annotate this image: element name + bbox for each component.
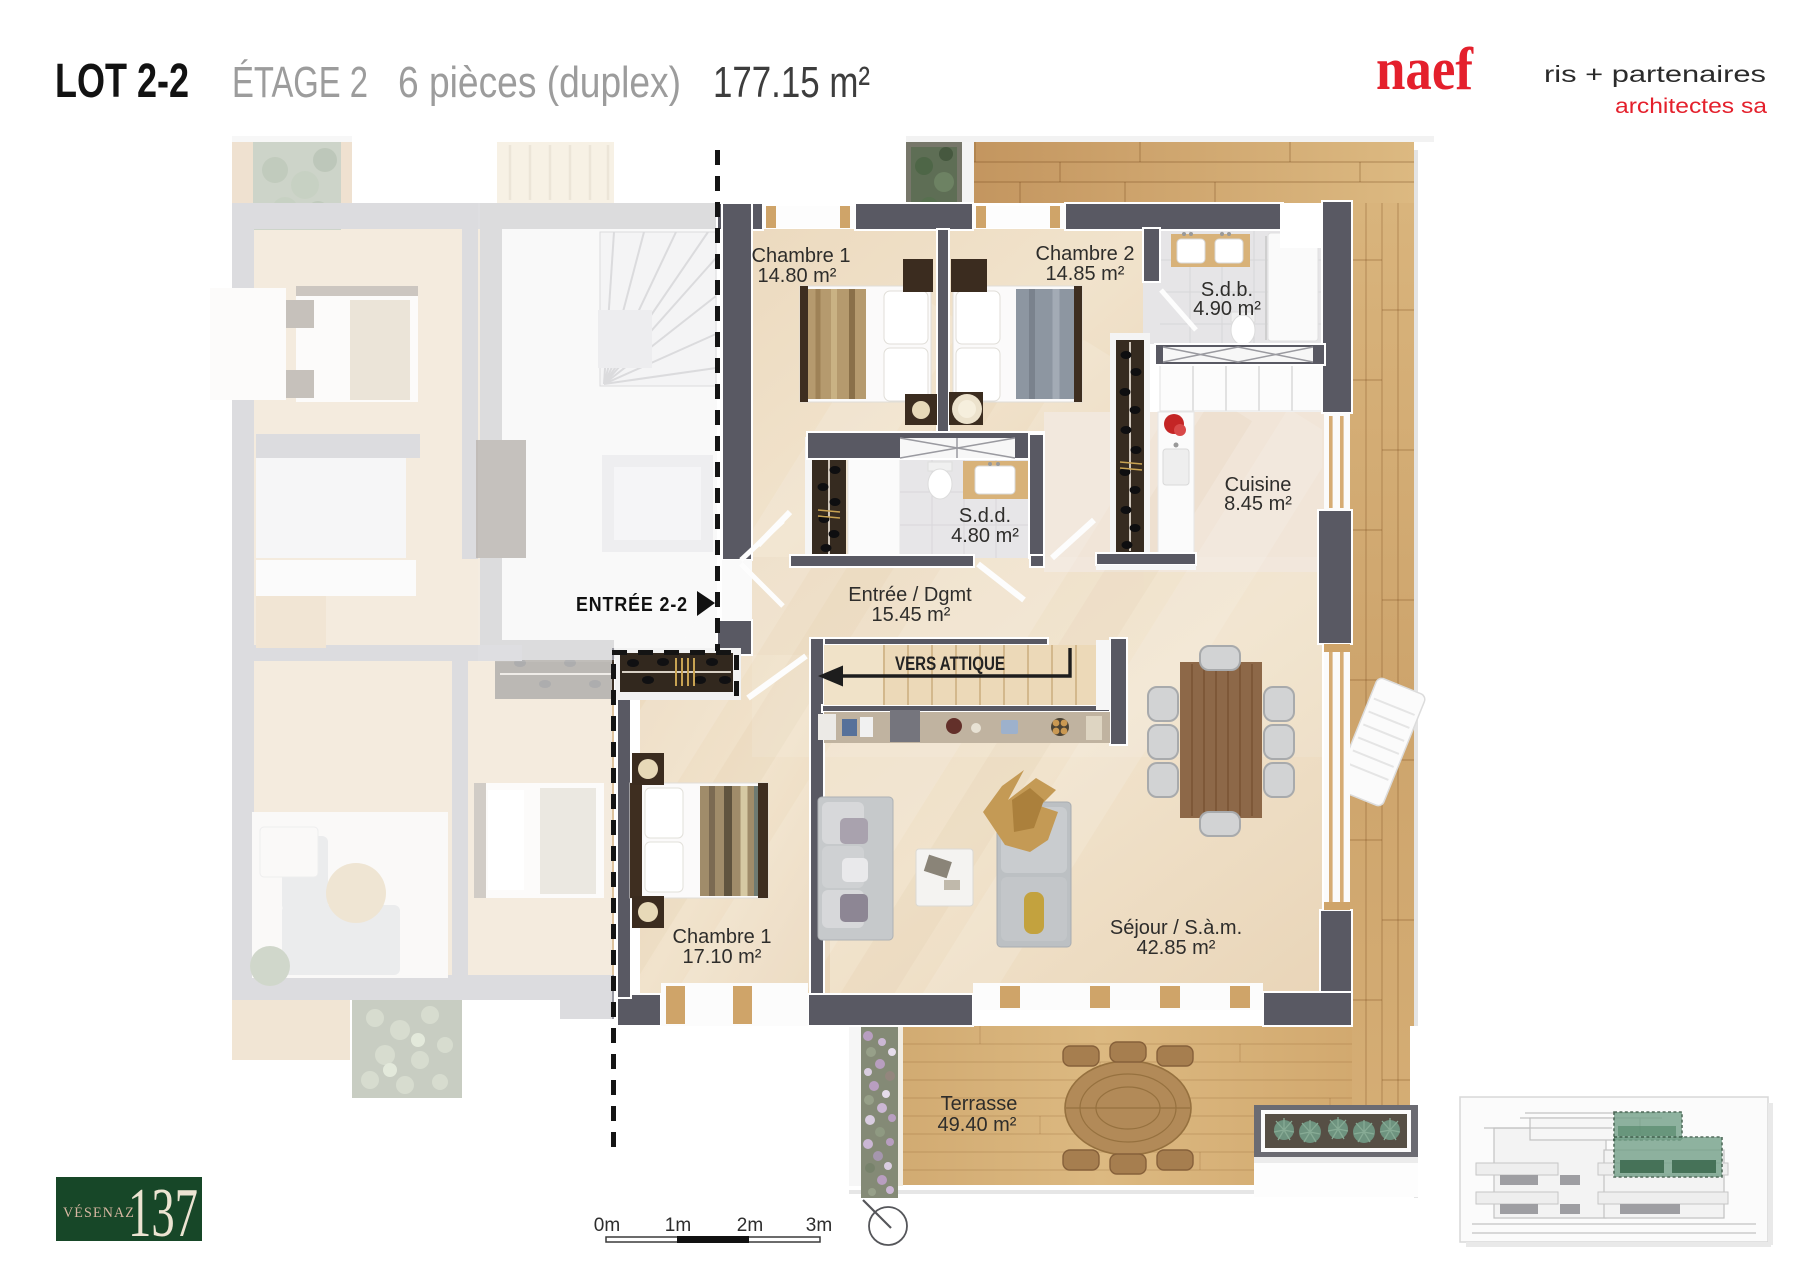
svg-text:VÉSENAZ: VÉSENAZ <box>63 1204 135 1221</box>
svg-text:VERS ATTIQUE: VERS ATTIQUE <box>895 654 1005 675</box>
svg-text:14.80 m²: 14.80 m² <box>758 265 837 287</box>
svg-text:4.80 m²: 4.80 m² <box>951 525 1019 547</box>
svg-text:Terrasse: Terrasse <box>941 1093 1018 1115</box>
svg-text:1m: 1m <box>665 1215 691 1236</box>
svg-text:LOT 2-2: LOT 2-2 <box>55 55 189 108</box>
svg-text:0m: 0m <box>594 1215 620 1236</box>
svg-text:ENTRÉE 2-2: ENTRÉE 2-2 <box>576 593 688 616</box>
svg-text:Séjour / S.à.m.: Séjour / S.à.m. <box>1110 917 1242 939</box>
svg-text:4.90 m²: 4.90 m² <box>1193 298 1261 320</box>
svg-text:3m: 3m <box>806 1215 832 1236</box>
svg-text:Chambre 1: Chambre 1 <box>752 245 851 267</box>
svg-text:14.85 m²: 14.85 m² <box>1046 263 1125 285</box>
svg-text:137: 137 <box>128 1175 198 1252</box>
svg-text:Chambre 2: Chambre 2 <box>1036 243 1135 265</box>
svg-text:42.85 m²: 42.85 m² <box>1137 937 1216 959</box>
svg-text:17.10 m²: 17.10 m² <box>683 946 762 968</box>
svg-text:S.d.d.: S.d.d. <box>959 505 1011 527</box>
svg-text:6 pièces (duplex): 6 pièces (duplex) <box>398 58 681 107</box>
svg-text:15.45 m²: 15.45 m² <box>872 604 951 626</box>
svg-text:naef: naef <box>1376 36 1474 102</box>
svg-text:ris + partenaires: ris + partenaires <box>1544 61 1766 87</box>
svg-text:177.15 m²: 177.15 m² <box>713 58 870 107</box>
svg-text:8.45 m²: 8.45 m² <box>1224 493 1292 515</box>
svg-text:Entrée / Dgmt: Entrée / Dgmt <box>848 584 972 606</box>
svg-text:Chambre 1: Chambre 1 <box>673 926 772 948</box>
svg-text:49.40 m²: 49.40 m² <box>938 1114 1017 1136</box>
svg-text:architectes sa: architectes sa <box>1615 95 1767 118</box>
svg-text:2m: 2m <box>737 1215 763 1236</box>
svg-text:ÉTAGE 2: ÉTAGE 2 <box>232 58 368 107</box>
